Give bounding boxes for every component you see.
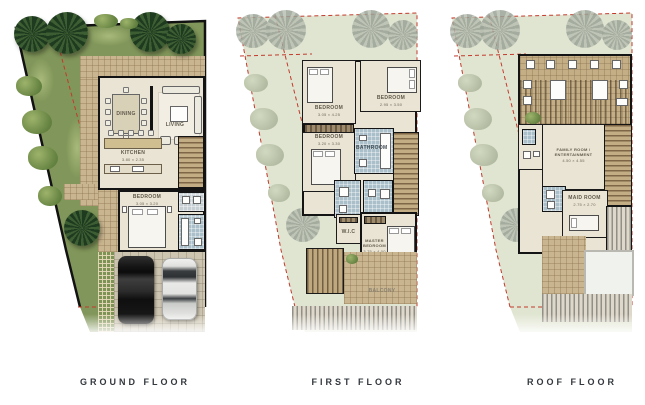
staircase	[393, 132, 419, 216]
chair-icon	[141, 120, 147, 126]
shower	[339, 187, 349, 197]
pillow	[571, 218, 577, 228]
wardrobe	[339, 217, 358, 223]
bush-icon	[120, 18, 138, 29]
bathroom-small	[334, 180, 361, 218]
outdoor-seat	[619, 80, 628, 89]
stool-icon	[148, 130, 154, 136]
family-room: FAMILY ROOM / ENTERTAINMENT 4.50 × 4.55	[542, 124, 606, 190]
nightstand	[122, 206, 127, 213]
roof-terrace	[518, 54, 632, 126]
palm-tree-icon	[14, 16, 50, 52]
chair-icon	[141, 109, 147, 115]
toilet	[547, 201, 555, 209]
outdoor-seat	[590, 60, 599, 69]
bedroom-2: BEDROOM 2.95 × 3.50	[360, 60, 421, 112]
balcony-label: BALCONY	[360, 288, 404, 295]
pillow	[409, 69, 415, 78]
toilet	[359, 159, 367, 167]
open-roof-void	[584, 250, 634, 296]
patio-paving	[80, 56, 205, 78]
sink	[110, 166, 120, 172]
bush-icon	[244, 74, 268, 92]
stool-icon	[138, 130, 144, 136]
bush-icon	[482, 184, 504, 202]
chair-icon	[123, 87, 129, 93]
palm-tree-icon	[352, 10, 390, 48]
bush-icon	[94, 14, 118, 28]
shower	[522, 129, 536, 145]
nightstand	[167, 206, 172, 213]
pillow	[325, 151, 335, 157]
palm-tree-icon	[130, 12, 170, 52]
palm-tree-icon	[388, 20, 418, 50]
family-room-label: FAMILY ROOM / ENTERTAINMENT 4.50 × 4.55	[547, 147, 600, 163]
bush-icon	[22, 110, 52, 134]
outdoor-seat	[523, 96, 532, 105]
outdoor-table	[592, 80, 608, 100]
shower	[546, 190, 555, 199]
walkway-paving	[64, 184, 98, 200]
bedroom-1: BEDROOM 3.05 × 4.25	[302, 60, 356, 124]
washer	[182, 196, 190, 204]
toilet	[194, 238, 202, 246]
bathtub	[380, 133, 391, 169]
grass-patch	[86, 26, 132, 46]
outdoor-seat	[612, 60, 621, 69]
floor-label-ground: GROUND FLOOR	[80, 377, 190, 387]
pillow	[320, 69, 329, 75]
palm-tree-icon	[266, 10, 306, 50]
chair-icon	[105, 98, 111, 104]
roof-bathroom	[518, 124, 544, 170]
tv-wall	[150, 86, 153, 132]
plant-icon	[346, 254, 358, 264]
staircase	[604, 124, 632, 206]
palm-tree-icon	[450, 14, 484, 48]
outdoor-seat	[526, 60, 535, 69]
terrace-paving	[542, 236, 586, 294]
bush-icon	[470, 144, 498, 166]
kitchen-island	[104, 138, 162, 149]
pillow	[147, 209, 158, 215]
toilet	[368, 189, 376, 197]
sofa	[162, 86, 200, 94]
bush-icon	[28, 146, 58, 170]
living-dining-kitchen-block: DINING LIVING KITCHEN 3.80 × 2.35	[98, 76, 205, 190]
stool-icon	[128, 130, 134, 136]
lounger	[616, 98, 628, 106]
toilet	[339, 205, 347, 213]
cooktop	[132, 166, 144, 172]
floor-label-roof: ROOF FLOOR	[527, 377, 617, 387]
terrace-pergola	[306, 248, 344, 294]
white-car-icon	[162, 258, 197, 320]
bathroom-label: BATHROOM	[356, 145, 380, 152]
pillow	[409, 80, 415, 89]
palm-tree-icon	[236, 14, 270, 48]
wardrobe	[364, 216, 386, 224]
outdoor-seat	[568, 60, 577, 69]
pillow	[132, 209, 143, 215]
palm-tree-icon	[602, 20, 632, 50]
bush-icon	[458, 74, 482, 92]
sofa	[194, 96, 202, 134]
palm-tree-icon	[566, 10, 604, 48]
bush-icon	[250, 108, 278, 130]
bedroom-3-label: BEDROOM 3.20 × 3.30	[305, 134, 353, 146]
dryer	[193, 196, 201, 204]
first-floor-block: BEDROOM 3.05 × 4.25 BEDROOM 2.95 × 3.50 …	[302, 60, 417, 216]
dining-label: DINING	[114, 111, 138, 118]
floor-label-first: FIRST FLOOR	[312, 377, 405, 387]
bedroom-1-label: BEDROOM 3.05 × 4.25	[305, 105, 353, 117]
bedroom-label: BEDROOM 3.05 × 3.20	[124, 194, 170, 206]
basin	[533, 151, 540, 157]
palm-tree-icon	[166, 24, 196, 54]
living-label: LIVING	[158, 122, 192, 129]
basin	[194, 218, 201, 224]
shade-louvers	[606, 206, 632, 256]
shower	[380, 189, 390, 199]
pillow	[389, 228, 399, 234]
palm-tree-icon	[46, 12, 88, 54]
chair-icon	[105, 120, 111, 126]
wic-label: W.I.C	[338, 229, 359, 236]
bush-icon	[464, 108, 492, 130]
chair-icon	[105, 109, 111, 115]
bush-icon	[256, 144, 284, 166]
basin	[359, 135, 367, 141]
bush-icon	[16, 76, 42, 96]
ground-bedroom-block: BEDROOM 3.05 × 3.20	[118, 190, 205, 252]
walk-in-closet: W.I.C	[336, 214, 362, 244]
staircase	[178, 136, 204, 188]
floor-plans-sheet: DINING LIVING KITCHEN 3.80 × 2.35	[0, 0, 645, 405]
bathroom: BATHROOM	[354, 128, 394, 174]
pillow	[401, 228, 411, 234]
bathtub	[181, 218, 189, 246]
maid-room: MAID ROOM 2.75 × 2.70	[562, 190, 608, 238]
palm-tree-icon	[64, 210, 100, 246]
pillow	[313, 151, 323, 157]
palm-tree-icon	[480, 10, 520, 50]
stool-icon	[118, 130, 124, 136]
toilet	[523, 151, 531, 159]
kitchen-label: KITCHEN 3.80 × 2.35	[108, 150, 158, 162]
outdoor-seat	[546, 60, 555, 69]
fade-overlay	[0, 314, 645, 342]
porch-paving	[98, 190, 118, 252]
plant-icon	[525, 112, 541, 124]
pillow	[309, 69, 318, 75]
stool-icon	[108, 130, 114, 136]
bedroom-2-label: BEDROOM 2.95 × 3.50	[365, 95, 417, 107]
bush-icon	[268, 184, 290, 202]
maid-room-label: MAID ROOM 2.75 × 2.70	[566, 195, 603, 207]
outdoor-seat	[523, 80, 532, 89]
coffee-table	[170, 106, 188, 122]
outdoor-table	[550, 80, 566, 100]
chair-icon	[141, 98, 147, 104]
bush-icon	[38, 186, 62, 206]
